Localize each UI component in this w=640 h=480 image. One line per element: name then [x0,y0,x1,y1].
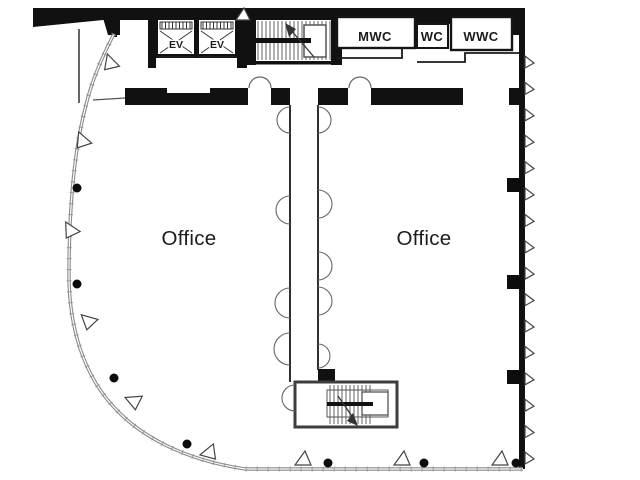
north-west-angled-wall [33,8,113,27]
hall-wall-seg [318,88,348,105]
elevator-label-2: EV [210,39,224,51]
stair-landing-bar [253,38,311,43]
doors [249,77,371,411]
room-label-wwc: WWC [463,29,498,44]
floor-plan-canvas: EV EV MWC WC WWC [0,0,640,480]
vent-triangle-icon [492,451,508,465]
north-west-wall-stub [103,18,120,35]
vent-triangle-icon [525,162,534,174]
vent-triangle-icon [525,399,534,411]
vent-triangle-icon [525,82,534,94]
vent-triangle-icon [295,451,311,465]
stair-landing-bar [327,402,373,406]
vent-triangle-icon [525,109,534,121]
vent-triangle-icon [200,441,219,459]
door-swing-arc [275,288,290,318]
vent-triangle-icon [525,294,534,306]
elevator-bank: EV EV [148,10,247,68]
east-wall-pier [509,88,522,105]
office-label-left: Office [162,227,217,250]
door-swing-arc [318,287,332,315]
office-label-right: Office [397,227,452,250]
stair-wall [247,61,342,65]
stair-north [247,17,342,65]
column-dot [183,440,192,449]
corridor-end-pier [318,369,335,382]
east-wall-columns [507,178,521,384]
core-hall-wall-band [125,88,522,105]
stair-south [295,382,397,427]
vent-triangle-icon [525,188,534,200]
vent-icons-west [66,54,508,465]
double-door-arcs-hall [249,77,371,88]
vent-triangle-icon [525,452,534,464]
column-dot [324,459,333,468]
corridor-door-arcs [274,107,332,411]
column-block [507,178,521,192]
column-block [507,370,521,384]
hall-wall-seg [271,88,290,105]
door-swing-arc [318,252,332,280]
vent-triangle-icon [125,389,146,410]
door-swing-arc [318,344,330,368]
vent-triangle-icon [525,320,534,332]
vent-triangle-icon [525,135,534,147]
column-dot [73,184,82,193]
corridor [290,105,335,382]
vent-triangle-icon [525,214,534,226]
hall-wall-seg [210,88,248,105]
elevator-label-1: EV [169,39,183,51]
vent-triangle-icon [525,56,534,68]
vent-icons-east [525,56,534,464]
door-swing-arc [277,107,290,133]
column-dot [512,459,521,468]
door-swing-arc [282,385,295,411]
vent-triangle-icon [525,373,534,385]
column-block [507,275,521,289]
floor-plan-page: EV EV MWC WC WWC [0,0,640,480]
column-dot [420,459,429,468]
vent-triangle-icon [525,426,534,438]
door-swing-arc [276,196,290,224]
door-swing-arc [318,107,331,133]
door-swing-arc [318,190,332,218]
vent-triangle-icon [105,54,122,72]
wall-above-wc [415,8,450,24]
vent-triangle-icon [525,241,534,253]
hall-wall-seg [125,88,167,105]
vent-triangle-icon [66,222,81,238]
vent-triangle-icon [81,310,100,330]
hall-wall-seg [371,88,463,105]
elevator-wall-stub [148,58,156,68]
column-dot [73,280,82,289]
lobby-boundary-line [93,98,125,100]
room-label-mwc: MWC [358,29,392,44]
restrooms: MWC WC WWC [337,17,519,62]
column-dot [110,374,119,383]
door-swing-arc [274,333,290,365]
vent-triangle-icon [525,267,534,279]
vent-triangle-icon [394,451,410,465]
vent-triangle-icon [525,346,534,358]
hall-wall-seg [167,93,210,105]
elevator-wall-stub [237,58,247,68]
vent-triangle-icon [77,132,92,149]
room-label-wc: WC [421,29,444,44]
